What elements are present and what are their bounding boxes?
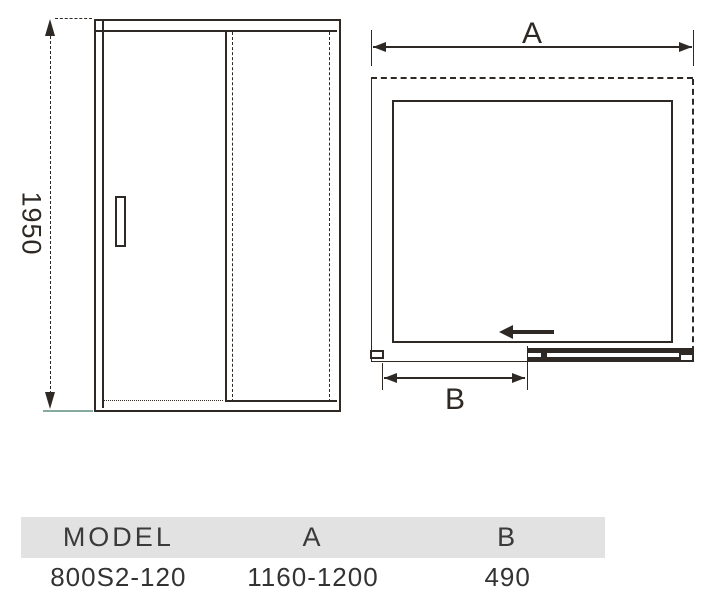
height-dim-bottom-extension-line bbox=[43, 410, 93, 412]
dim-b-arrow-right-icon bbox=[512, 373, 525, 383]
door-panel-bottom-bar bbox=[528, 357, 694, 362]
dim-a-right-tick bbox=[693, 30, 694, 66]
value-model: 800S2-120 bbox=[21, 562, 216, 593]
right-wall-profile bbox=[679, 353, 694, 362]
dim-b-line bbox=[384, 377, 525, 379]
slide-direction-arrow-shaft bbox=[512, 330, 554, 334]
height-dim-top-extension-line bbox=[55, 18, 92, 19]
height-dim-label: 1950 bbox=[16, 191, 47, 255]
dim-b-left-extension-line bbox=[382, 363, 383, 390]
dim-a-left-tick bbox=[371, 30, 372, 66]
header-a: A bbox=[216, 522, 411, 553]
dim-a-label: A bbox=[512, 17, 552, 51]
left-wall-profile bbox=[370, 350, 384, 359]
plan-outer-top-dashed-line bbox=[371, 77, 693, 79]
spec-table-row: 800S2-120 1160-1200 490 bbox=[21, 560, 605, 594]
front-right-panel-dashed-line bbox=[329, 32, 330, 402]
dim-b-label: B bbox=[435, 383, 475, 417]
front-mid-divider-dashed-line bbox=[232, 32, 233, 402]
dim-a-arrow-left-icon bbox=[373, 42, 386, 52]
plan-outer-left-line bbox=[371, 77, 372, 362]
spec-table-header: MODEL A B bbox=[21, 517, 605, 558]
slide-direction-arrow-icon bbox=[499, 325, 513, 339]
door-panel-top-bar bbox=[528, 348, 694, 353]
dim-arrow-up-icon bbox=[45, 19, 55, 36]
header-model: MODEL bbox=[21, 522, 216, 553]
front-outer-frame bbox=[94, 19, 341, 412]
height-dim-label-wrap: 1950 bbox=[4, 168, 58, 278]
header-b: B bbox=[410, 522, 605, 553]
dim-b-right-extension-line bbox=[527, 346, 528, 390]
door-handle bbox=[115, 196, 126, 247]
value-a: 1160-1200 bbox=[216, 562, 411, 593]
value-b: 490 bbox=[410, 562, 605, 593]
plan-outer-right-dashed-line bbox=[692, 79, 694, 362]
dim-arrow-down-icon bbox=[45, 392, 55, 409]
dim-b-arrow-left-icon bbox=[384, 373, 397, 383]
front-top-rail-line bbox=[96, 30, 337, 32]
shower-door-spec-drawing: 1950 A B MODEL bbox=[0, 0, 717, 610]
front-left-stile-line bbox=[102, 21, 104, 408]
door-panel-end-profile bbox=[541, 348, 547, 362]
front-bottom-rail-line bbox=[225, 400, 337, 402]
dim-a-arrow-right-icon bbox=[679, 42, 692, 52]
front-bottom-dotted-line bbox=[103, 400, 223, 401]
plan-inner-glass-outline bbox=[392, 100, 673, 343]
front-mid-divider-solid-line bbox=[225, 32, 227, 402]
